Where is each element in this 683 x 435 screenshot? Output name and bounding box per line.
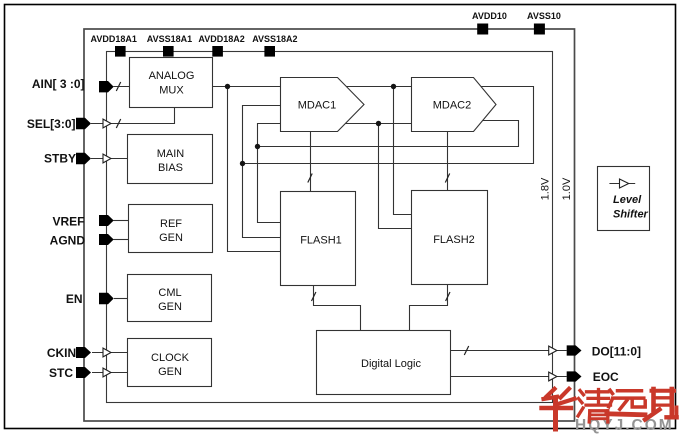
svg-text:CLOCK: CLOCK xyxy=(151,352,190,364)
svg-text:MUX: MUX xyxy=(159,85,184,97)
svg-text:CML: CML xyxy=(158,287,181,299)
svg-text:Shifter: Shifter xyxy=(613,209,649,221)
svg-text:CKIN: CKIN xyxy=(47,346,76,360)
svg-text:EN: EN xyxy=(66,292,83,306)
svg-text:GEN: GEN xyxy=(159,232,183,244)
svg-text:AVSS10: AVSS10 xyxy=(527,11,561,21)
svg-text:GEN: GEN xyxy=(158,301,182,313)
svg-text:DO[11:0]: DO[11:0] xyxy=(592,345,641,359)
svg-text:FLASH2: FLASH2 xyxy=(433,234,475,246)
svg-text:VREF: VREF xyxy=(52,215,84,229)
svg-text:Level: Level xyxy=(613,194,642,206)
svg-text:AVSS18A2: AVSS18A2 xyxy=(252,34,297,44)
svg-text:AGND: AGND xyxy=(50,234,86,248)
svg-text:MDAC1: MDAC1 xyxy=(298,100,337,112)
svg-text:1.0V: 1.0V xyxy=(561,177,573,200)
svg-text:STBY: STBY xyxy=(44,152,76,166)
svg-text:REF: REF xyxy=(160,218,182,230)
svg-text:AVDD18A2: AVDD18A2 xyxy=(198,34,244,44)
svg-text:1.8V: 1.8V xyxy=(540,177,552,200)
svg-text:GEN: GEN xyxy=(158,366,182,378)
svg-text:ANALOG: ANALOG xyxy=(149,70,195,82)
svg-text:MAIN: MAIN xyxy=(157,148,185,160)
svg-text:AIN[ 3 :0]: AIN[ 3 :0] xyxy=(32,77,85,91)
svg-text:AVDD18A1: AVDD18A1 xyxy=(91,34,137,44)
svg-text:FLASH1: FLASH1 xyxy=(300,235,342,247)
svg-text:STC: STC xyxy=(49,366,73,380)
svg-text:AVDD10: AVDD10 xyxy=(472,11,507,21)
svg-text:AVSS18A1: AVSS18A1 xyxy=(147,34,192,44)
svg-text:Digital Logic: Digital Logic xyxy=(361,358,421,370)
svg-text:MDAC2: MDAC2 xyxy=(433,100,472,112)
svg-text:SEL[3:0]: SEL[3:0] xyxy=(27,117,76,131)
svg-text:EOC: EOC xyxy=(593,370,619,384)
svg-text:BIAS: BIAS xyxy=(158,162,183,174)
